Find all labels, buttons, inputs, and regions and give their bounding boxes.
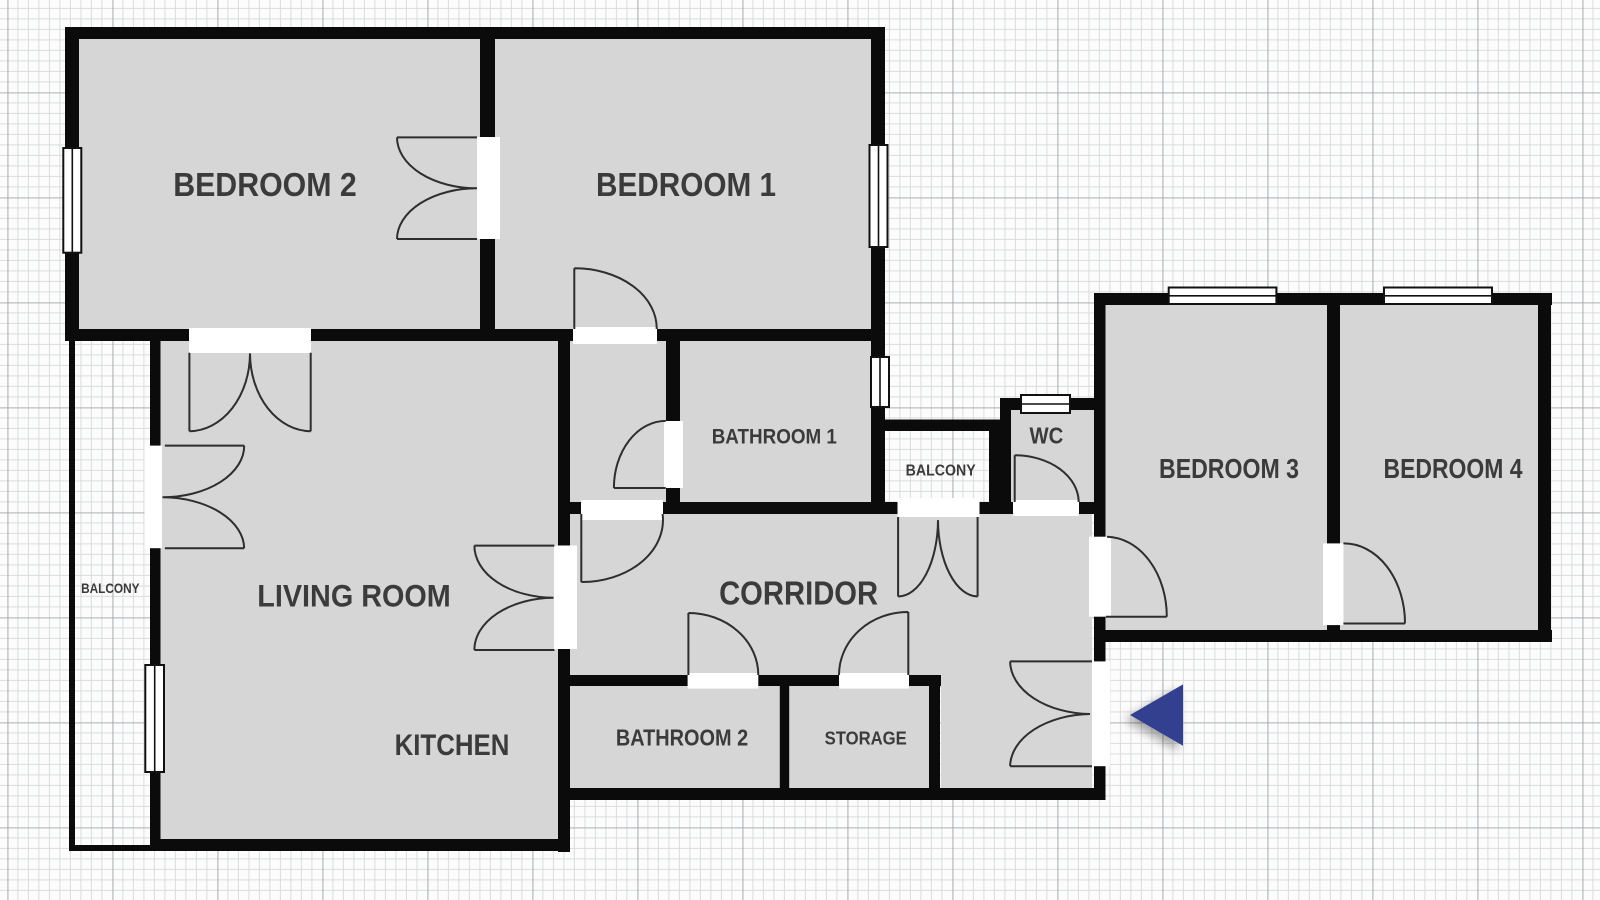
svg-text:WC: WC (1030, 423, 1064, 449)
svg-text:STORAGE: STORAGE (825, 727, 907, 748)
svg-text:KITCHEN: KITCHEN (395, 729, 510, 762)
svg-text:LIVING ROOM: LIVING ROOM (257, 579, 451, 614)
svg-text:BEDROOM 1: BEDROOM 1 (596, 167, 776, 204)
svg-text:BEDROOM 4: BEDROOM 4 (1384, 453, 1523, 484)
svg-text:BALCONY: BALCONY (81, 581, 139, 596)
svg-text:BEDROOM 2: BEDROOM 2 (173, 167, 357, 204)
svg-text:BATHROOM 2: BATHROOM 2 (616, 724, 748, 750)
svg-text:BEDROOM 3: BEDROOM 3 (1159, 453, 1299, 484)
svg-text:BATHROOM 1: BATHROOM 1 (712, 423, 837, 448)
svg-text:BALCONY: BALCONY (906, 463, 977, 480)
svg-text:CORRIDOR: CORRIDOR (719, 574, 878, 611)
